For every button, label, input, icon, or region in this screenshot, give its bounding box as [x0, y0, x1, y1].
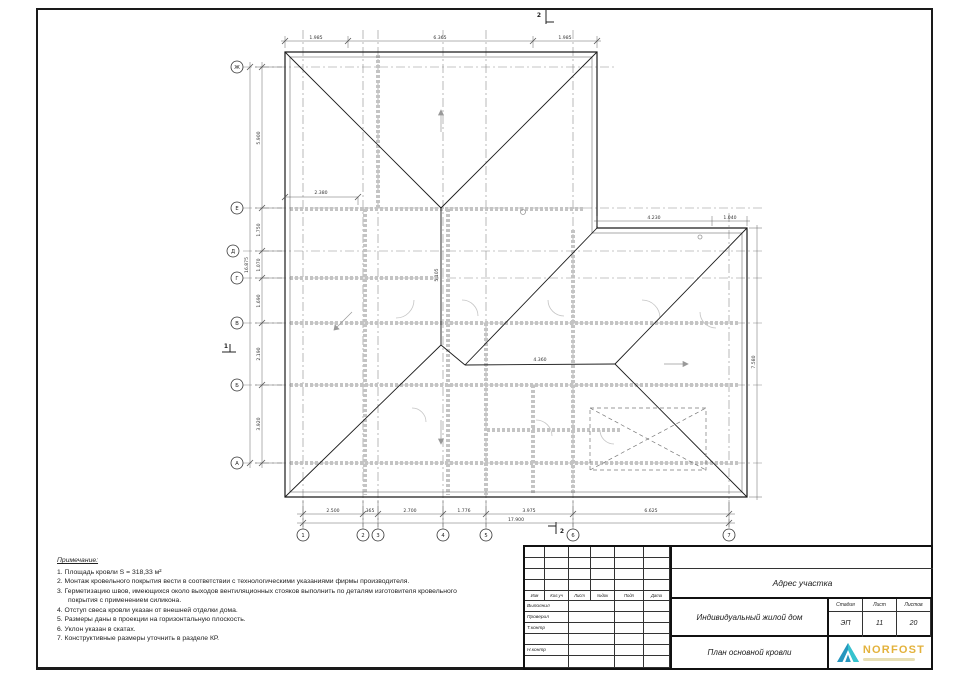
axis-number: 7 — [727, 533, 730, 539]
axis-letter: А — [235, 461, 239, 467]
doc-designation-cell — [672, 547, 933, 569]
dim-label: 6.365 — [433, 35, 446, 41]
dim-label: 16.875 — [244, 257, 250, 273]
drawing-name-cell: План основной кровли — [672, 637, 829, 668]
note-item: 2. Монтаж кровельного покрытия вести в с… — [57, 577, 469, 587]
logo-tagline — [863, 658, 915, 661]
titleblock-left: Изм Кол.уч Лист №док Подп Дата Выполнил … — [525, 547, 672, 668]
sheets-value: 20 — [897, 612, 931, 637]
signature-row-label: Выполнил — [525, 601, 569, 612]
note-item: 7. Конструктивные размеры уточнить в раз… — [57, 634, 469, 644]
dim-label: 2.700 — [403, 508, 416, 514]
dim-label: 2.190 — [256, 347, 262, 360]
titleblock-right: Адрес участка Индивидуальный жилой дом С… — [672, 547, 933, 668]
logo: NORFOST — [829, 637, 933, 668]
axis-letter: Е — [235, 206, 238, 212]
signature-row-label: Проверил — [525, 612, 569, 623]
section-mark-label: 1 — [224, 343, 228, 350]
axis-number: 3 — [376, 533, 379, 539]
axis-number: 5 — [484, 533, 487, 539]
sheet-header-cell: Лист — [863, 599, 897, 612]
logo-triangle-icon — [837, 643, 859, 662]
stage-value: ЭП — [829, 612, 863, 637]
sheets-header-cell: Листов — [897, 599, 931, 612]
object-name-cell: Индивидуальный жилой дом — [672, 599, 829, 635]
stage-grid: Стадия Лист Листов ЭП 11 20 — [829, 599, 931, 635]
axis-letter: Б — [235, 383, 239, 389]
notes: Примечание: 1. Площадь кровли S = 318,33… — [57, 556, 469, 644]
note-item: 5. Размеры даны в проекции на горизонтал… — [57, 615, 469, 625]
sheet: 2.500 365 2.700 1.776 3.975 6.625 17.900… — [0, 0, 960, 680]
note-item: 3. Герметизацию швов, имеющихся около вы… — [57, 587, 469, 606]
section-marks — [222, 10, 556, 534]
dim-label: 1.040 — [723, 215, 736, 221]
revision-header-cell: №док — [591, 591, 615, 601]
notes-title: Примечание: — [57, 556, 469, 566]
section-mark-label: 2 — [560, 528, 564, 535]
roof-outline — [285, 52, 747, 497]
terrace-outline — [590, 408, 706, 470]
dim-label: 1.750 — [256, 223, 262, 236]
dim-label: 1.070 — [256, 258, 262, 271]
dim-label: 17.900 — [508, 517, 524, 523]
axis-number: 2 — [361, 533, 364, 539]
revision-header-cell: Изм — [525, 591, 545, 601]
dim-label: 7.580 — [751, 355, 757, 368]
revision-grid — [525, 547, 670, 591]
dim-label: 2.380 — [314, 190, 327, 196]
sheet-value: 11 — [863, 612, 897, 637]
revision-header-cell: Кол.уч — [545, 591, 569, 601]
axis-number: 1 — [301, 533, 304, 539]
dim-label: 6.625 — [644, 508, 657, 514]
section-mark-label: 2 — [537, 12, 541, 19]
revision-header-cell: Подп — [615, 591, 644, 601]
dim-label: 3.920 — [256, 417, 262, 430]
note-item: 1. Площадь кровли S = 318,33 м² — [57, 568, 469, 578]
axis-letter: Г — [235, 276, 238, 282]
note-item: 6. Уклон указан в скатах. — [57, 625, 469, 635]
signature-row-label — [525, 656, 569, 667]
dim-label: 1.985 — [309, 35, 322, 41]
signature-row-label: Т.контр — [525, 623, 569, 634]
axis-letter: Ж — [234, 65, 240, 71]
dim-label: 365 — [366, 508, 375, 514]
logo-text: NORFOST — [863, 645, 925, 656]
address-cell: Адрес участка — [672, 569, 933, 599]
revision-header-row: Изм Кол.уч Лист №док Подп Дата — [525, 591, 670, 601]
dim-label: 4.360 — [533, 357, 546, 363]
titleblock: Изм Кол.уч Лист №док Подп Дата Выполнил … — [523, 545, 933, 670]
signature-grid: Выполнил Проверил Т.контр Н.контр — [525, 601, 670, 668]
dim-label: 4.230 — [647, 215, 660, 221]
axis-letter: В — [235, 321, 239, 327]
note-item: 4. Отступ свеса кровли указан от внешней… — [57, 606, 469, 616]
stage-header-cell: Стадия — [829, 599, 863, 612]
dim-label: 2.500 — [326, 508, 339, 514]
revision-header-cell: Дата — [644, 591, 670, 601]
axis-labels: Ж Е Д Г В Б А 1 2 3 4 5 6 7 — [231, 65, 731, 539]
dim-label: 1.985 — [558, 35, 571, 41]
axis-number: 6 — [571, 533, 574, 539]
dim-label: 3.975 — [522, 508, 535, 514]
section-mark-labels: 2 2 1 — [224, 12, 564, 535]
dimension-chains — [247, 36, 762, 527]
floorplan-underlay — [290, 55, 740, 495]
axis-letter: Д — [231, 249, 235, 255]
dim-label: 1.776 — [457, 508, 470, 514]
dim-label: 5.105 — [434, 268, 440, 281]
dim-label: 5.900 — [256, 131, 262, 144]
revision-header-cell: Лист — [569, 591, 591, 601]
signature-row-label: Н.контр — [525, 645, 569, 656]
dim-label: 1.690 — [256, 294, 262, 307]
signature-row-label — [525, 634, 569, 645]
